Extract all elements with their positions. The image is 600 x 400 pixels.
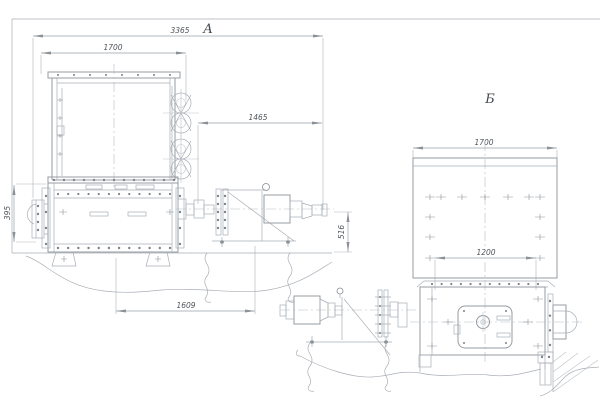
eyebolt-a [263, 184, 270, 191]
dim-right-height: 516 [334, 212, 352, 252]
dim-base-span-value: 1609 [176, 301, 195, 310]
spring-hanger [308, 343, 314, 391]
hopper-a [48, 64, 199, 190]
dim-upper-span-value: 1465 [248, 113, 267, 122]
drawing-canvas: А 3365 1700 1465 395 516 [0, 0, 600, 400]
side-bracket [27, 200, 48, 238]
spring-hanger [288, 253, 294, 302]
view-b: Б 1700 1200 [280, 92, 599, 396]
dim-right-height-value: 516 [337, 225, 346, 240]
dim-opening-width: 1200 [435, 248, 536, 290]
dim-left-height-value: 395 [3, 206, 12, 221]
feet-a [52, 252, 170, 266]
dim-opening-width-value: 1200 [476, 248, 495, 257]
dim-hopper-width-a-value: 1700 [103, 43, 122, 52]
support-column [538, 352, 553, 385]
inspection-hatch [454, 306, 512, 348]
vibrator-bottom [163, 135, 199, 183]
spring-hanger [385, 343, 391, 391]
base-a [12, 253, 332, 302]
motor-a [176, 184, 334, 248]
dim-overall-width-value: 3365 [170, 26, 189, 35]
dim-left-height: 395 [3, 184, 46, 242]
eyebolt-b [337, 288, 343, 294]
dim-hopper-width-b-value: 1700 [474, 138, 493, 147]
ground-hatch [540, 352, 599, 396]
view-b-label: Б [484, 92, 495, 107]
spring-hanger [205, 253, 211, 302]
vibrator-top [163, 89, 199, 137]
view-a-label: А [202, 22, 213, 37]
view-a: А 3365 1700 1465 395 516 [3, 22, 352, 314]
drawing-sheet: А 3365 1700 1465 395 516 [0, 0, 600, 400]
body-b [410, 287, 599, 396]
dim-base-span: 1609 [116, 246, 255, 314]
motor-b [280, 288, 545, 391]
bearing-unit [548, 294, 577, 352]
